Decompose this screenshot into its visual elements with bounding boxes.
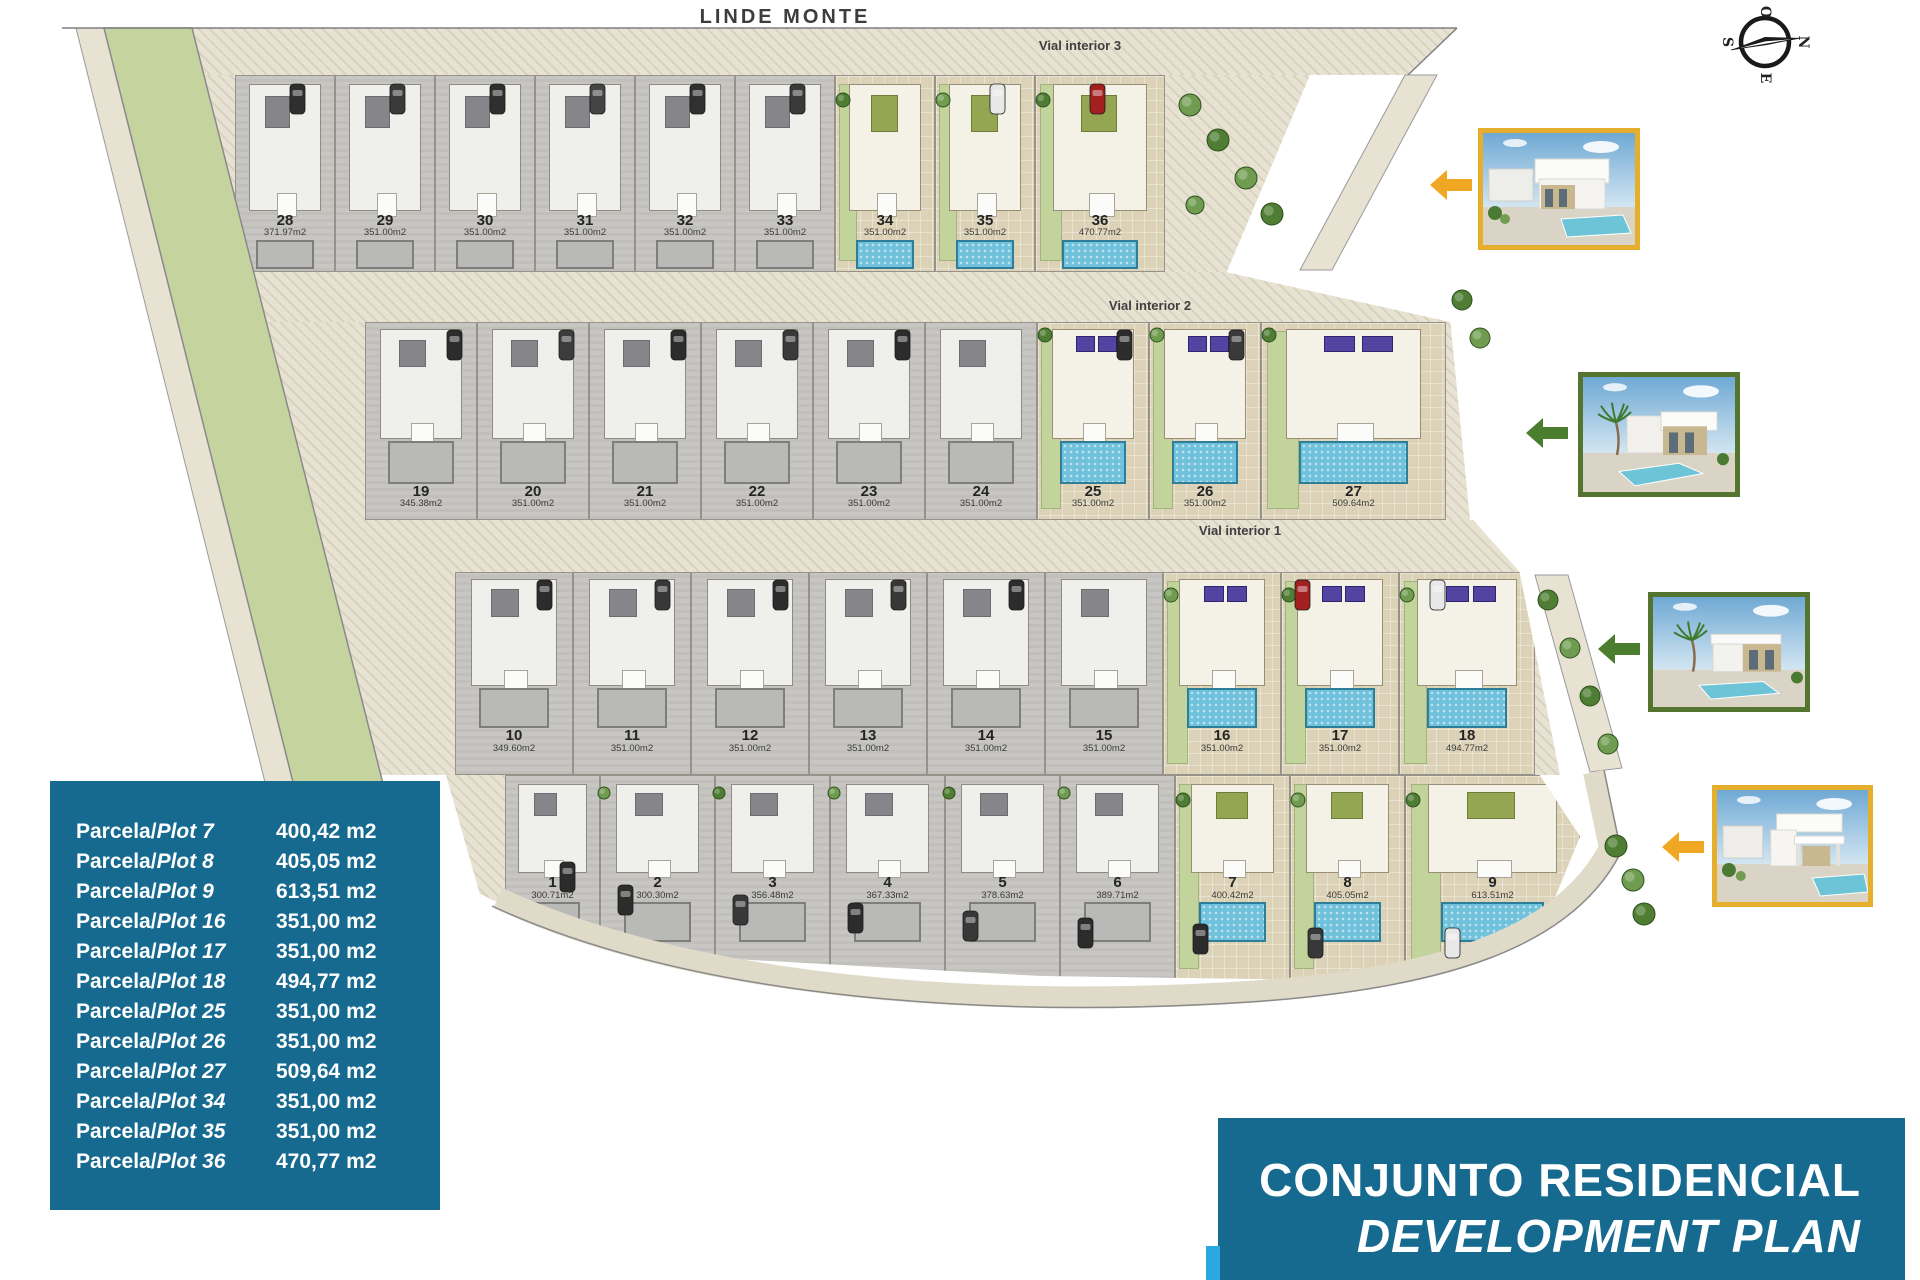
plot-area-label: 351.00m2 [810,744,926,754]
plot-23[interactable]: 23351.00m2 [813,322,925,520]
plot-label: 29351.00m2 [336,213,434,239]
legend-plot-label: Parcela/Plot 7 [76,817,276,847]
plot-number: 14 [928,728,1044,744]
legend-area-value: 351,00 m2 [276,910,376,933]
roof-patch [623,340,650,368]
legend-row-plot-27: Parcela/Plot 27509,64 m2 [76,1057,440,1087]
plot-30[interactable]: 30351.00m2 [435,75,535,272]
plot-area-label: 300.30m2 [601,891,714,901]
pool [724,441,790,484]
plot-number: 15 [1046,728,1162,744]
plot-number: 17 [1282,728,1398,744]
villa-photo-4[interactable] [1712,785,1873,907]
pool [388,441,454,484]
house [1191,784,1275,873]
house [849,84,922,211]
plot-13[interactable]: 13351.00m2 [809,572,927,775]
legend-area-value: 470,77 m2 [276,1150,376,1173]
legend-row-plot-25: Parcela/Plot 25351,00 m2 [76,997,440,1027]
plot-number: 34 [836,213,934,229]
plot-26[interactable]: 26351.00m2 [1149,322,1261,520]
house [1052,329,1133,439]
house [943,579,1029,686]
compass-rose-icon: ONES [1715,0,1815,92]
pool [854,902,922,943]
pool [1305,688,1375,728]
plot-area-label: 509.64m2 [1262,499,1445,509]
plot-area-label: 351.00m2 [702,499,812,509]
title-line-spanish: CONJUNTO RESIDENCIAL [1218,1152,1861,1208]
plot-area-label: 405.05m2 [1291,891,1404,901]
villa-photo-2[interactable] [1578,372,1740,497]
roof-patch [365,96,390,128]
legend-plot-label: Parcela/Plot 27 [76,1057,276,1087]
plot-label: 15351.00m2 [1046,728,1162,754]
svg-text:E: E [1757,73,1773,84]
plot-17[interactable]: 17351.00m2 [1281,572,1399,775]
plot-number: 4 [831,875,944,891]
plot-number: 2 [601,875,714,891]
plot-31[interactable]: 31351.00m2 [535,75,635,272]
plot-number: 9 [1406,875,1579,891]
legend-area-value: 351,00 m2 [276,1090,376,1113]
plot-area-label: 351.00m2 [590,499,700,509]
house [649,84,722,211]
plot-2[interactable]: 2300.30m2 [600,775,715,980]
plot-number: 1 [506,875,599,891]
roof-patch [534,793,557,816]
photo-arrow-green-icon [1526,418,1568,448]
roof-terrace [1216,792,1247,818]
pool [1060,441,1126,484]
plot-label: 27509.64m2 [1262,484,1445,510]
plot-number: 20 [478,484,588,500]
house [471,579,557,686]
plot-label: 10349.60m2 [456,728,572,754]
plot-area-label: 351.00m2 [636,228,734,238]
plot-18[interactable]: 18494.77m2 [1399,572,1535,775]
plot-area-label: 351.00m2 [574,744,690,754]
legend-plot-label: Parcela/Plot 34 [76,1087,276,1117]
house [1286,329,1421,439]
plot-area-label: 351.00m2 [926,499,1036,509]
house [825,579,911,686]
plot-28[interactable]: 28371.97m2 [235,75,335,272]
plot-35[interactable]: 35351.00m2 [935,75,1035,272]
pool [356,240,415,269]
plot-area-label: 351.00m2 [1164,744,1280,754]
plot-number: 7 [1176,875,1289,891]
house [492,329,573,439]
plot-label: 12351.00m2 [692,728,808,754]
plot-label: 23351.00m2 [814,484,924,510]
plot-label: 11351.00m2 [574,728,690,754]
house [1179,579,1265,686]
legend-plot-label: Parcela/Plot 35 [76,1117,276,1147]
plot-number: 27 [1262,484,1445,500]
plot-number: 30 [436,213,534,229]
pool [1069,688,1139,728]
plot-number: 5 [946,875,1059,891]
legend-area-value: 405,05 m2 [276,850,376,873]
plot-area-label: 378.63m2 [946,891,1059,901]
solar-panel [1188,336,1207,352]
legend-row-plot-7: Parcela/Plot 7400,42 m2 [76,817,440,847]
plot-12[interactable]: 12351.00m2 [691,572,809,775]
plot-number: 6 [1061,875,1174,891]
plot-area-label: 351.00m2 [336,228,434,238]
house [940,329,1021,439]
plot-area-label: 351.00m2 [536,228,634,238]
plot-label: 7400.42m2 [1176,875,1289,901]
house [616,784,700,873]
plot-19[interactable]: 19345.38m2 [365,322,477,520]
house [716,329,797,439]
roof-patch [635,793,663,816]
plot-label: 4367.33m2 [831,875,944,901]
cyan-accent-bar [1206,1246,1220,1280]
legend-area-value: 494,77 m2 [276,970,376,993]
house [604,329,685,439]
plot-8[interactable]: 8405.05m2 [1290,775,1405,980]
legend-area-value: 351,00 m2 [276,1030,376,1053]
plot-number: 10 [456,728,572,744]
photo-arrow-yellow-icon [1430,170,1472,200]
plot-label: 36470.77m2 [1036,213,1164,239]
plot-label: 13351.00m2 [810,728,926,754]
plot-number: 28 [236,213,334,229]
svg-text:S: S [1719,37,1735,47]
plot-area-label: 351.00m2 [814,499,924,509]
roof-patch [565,96,590,128]
plot-number: 24 [926,484,1036,500]
legend-row-plot-16: Parcela/Plot 16351,00 m2 [76,907,440,937]
plot-area-label: 351.00m2 [936,228,1034,238]
svg-text:N: N [1795,36,1811,49]
plot-25[interactable]: 25351.00m2 [1037,322,1149,520]
title-line-english: DEVELOPMENT PLAN [1218,1208,1861,1264]
plot-label: 2300.30m2 [601,875,714,901]
plot-10[interactable]: 10349.60m2 [455,572,573,775]
pool [833,688,903,728]
plot-34[interactable]: 34351.00m2 [835,75,935,272]
plot-27[interactable]: 27509.64m2 [1261,322,1446,520]
pool [951,688,1021,728]
plot-label: 25351.00m2 [1038,484,1148,510]
plot-label: 30351.00m2 [436,213,534,239]
pool [256,240,315,269]
roof-patch [465,96,490,128]
plot-area-label: 351.00m2 [1046,744,1162,754]
legend-row-plot-36: Parcela/Plot 36470,77 m2 [76,1147,440,1177]
plot-legend: Parcela/Plot 7400,42 m2Parcela/Plot 8405… [50,781,440,1210]
roof-terrace [1467,792,1514,818]
solar-panel [1098,336,1117,352]
pool [656,240,715,269]
house [1428,784,1556,873]
legend-row-plot-18: Parcela/Plot 18494,77 m2 [76,967,440,997]
plot-5[interactable]: 5378.63m2 [945,775,1060,980]
plot-number: 26 [1150,484,1260,500]
plot-number: 32 [636,213,734,229]
plot-area-label: 351.00m2 [1038,499,1148,509]
plot-label: 24351.00m2 [926,484,1036,510]
legend-row-plot-17: Parcela/Plot 17351,00 m2 [76,937,440,967]
legend-plot-label: Parcela/Plot 18 [76,967,276,997]
plot-3[interactable]: 3356.48m2 [715,775,830,980]
house [549,84,622,211]
plot-area-label: 389.71m2 [1061,891,1174,901]
house [1417,579,1516,686]
plot-label: 17351.00m2 [1282,728,1398,754]
site-boundary-label: LINDE MONTE [585,6,985,29]
pool [1427,688,1507,728]
plot-number: 11 [574,728,690,744]
roof-patch [399,340,426,368]
plot-row-row-10-18: 10349.60m211351.00m212351.00m213351.00m2… [210,572,1560,775]
pool [715,688,785,728]
plot-4[interactable]: 4367.33m2 [830,775,945,980]
plot-area-label: 351.00m2 [836,228,934,238]
pool [1172,441,1238,484]
plot-area-label: 400.42m2 [1176,891,1289,901]
plot-label: 22351.00m2 [702,484,812,510]
roof-patch [665,96,690,128]
plot-label: 9613.51m2 [1406,875,1579,901]
solar-panel [1204,586,1224,602]
solar-panel [1322,586,1342,602]
plot-label: 16351.00m2 [1164,728,1280,754]
plot-label: 8405.05m2 [1291,875,1404,901]
roof-patch [727,589,756,616]
solar-panel [1076,336,1095,352]
plot-20[interactable]: 20351.00m2 [477,322,589,520]
plot-area-label: 351.00m2 [736,228,834,238]
plot-label: 20351.00m2 [478,484,588,510]
road-vial-interior-1 [200,520,1540,572]
plot-15[interactable]: 15351.00m2 [1045,572,1163,775]
plot-area-label: 351.00m2 [928,744,1044,754]
roof-patch [845,589,874,616]
pool [556,240,615,269]
plot-label: 33351.00m2 [736,213,834,239]
pool [525,902,581,943]
plot-number: 31 [536,213,634,229]
plot-row-row-28-36: 28371.97m229351.00m230351.00m231351.00m2… [120,75,1310,272]
development-plan-canvas: LINDE MONTE Vial interior 3Vial interior… [0,0,1920,1280]
plot-area-label: 351.00m2 [1282,744,1398,754]
plot-row-row-19-27: 19345.38m220351.00m221351.00m222351.00m2… [160,322,1470,520]
plot-area-label: 345.38m2 [366,499,476,509]
solar-panel [1324,336,1355,352]
roof-patch [847,340,874,368]
legend-plot-label: Parcela/Plot 25 [76,997,276,1027]
plot-number: 12 [692,728,808,744]
solar-panel [1473,586,1496,602]
roof-terrace [1331,792,1362,818]
plot-number: 19 [366,484,476,500]
roof-patch [511,340,538,368]
pool [1441,902,1545,943]
plot-label: 28371.97m2 [236,213,334,239]
house [449,84,522,211]
solar-panel [1227,586,1247,602]
plot-9[interactable]: 9613.51m2 [1405,775,1580,980]
house [380,329,461,439]
solar-panel [1446,586,1469,602]
legend-plot-label: Parcela/Plot 36 [76,1147,276,1177]
legend-row-plot-35: Parcela/Plot 35351,00 m2 [76,1117,440,1147]
street-label-1: Vial interior 1 [1150,523,1330,538]
street-label-3: Vial interior 3 [990,38,1170,53]
plot-area-label: 470.77m2 [1036,228,1164,238]
plot-label: 26351.00m2 [1150,484,1260,510]
plot-21[interactable]: 21351.00m2 [589,322,701,520]
house [1164,329,1245,439]
plot-number: 33 [736,213,834,229]
plot-label: 1300.71m2 [506,875,599,901]
plot-area-label: 613.51m2 [1406,891,1579,901]
house [249,84,322,211]
plot-number: 22 [702,484,812,500]
plot-22[interactable]: 22351.00m2 [701,322,813,520]
roof-terrace [1081,95,1116,132]
plot-32[interactable]: 32351.00m2 [635,75,735,272]
roof-patch [963,589,992,616]
plot-24[interactable]: 24351.00m2 [925,322,1037,520]
house [589,579,675,686]
plot-6[interactable]: 6389.71m2 [1060,775,1175,980]
roof-patch [865,793,893,816]
plot-7[interactable]: 7400.42m2 [1175,775,1290,980]
legend-row-plot-8: Parcela/Plot 8405,05 m2 [76,847,440,877]
plot-29[interactable]: 29351.00m2 [335,75,435,272]
plot-36[interactable]: 36470.77m2 [1035,75,1165,272]
legend-row-plot-9: Parcela/Plot 9613,51 m2 [76,877,440,907]
plot-label: 19345.38m2 [366,484,476,510]
plot-label: 5378.63m2 [946,875,1059,901]
pool [948,441,1014,484]
legend-area-value: 509,64 m2 [276,1060,376,1083]
pool [1314,902,1382,943]
house [518,784,587,873]
roof-patch [609,589,638,616]
plot-area-label: 367.33m2 [831,891,944,901]
house [1297,579,1383,686]
plot-label: 35351.00m2 [936,213,1034,239]
legend-area-value: 613,51 m2 [276,880,376,903]
svg-text:O: O [1757,6,1773,18]
roof-patch [980,793,1008,816]
plot-area-label: 349.60m2 [456,744,572,754]
solar-panel [1362,336,1393,352]
pool [1299,441,1409,484]
plot-area-label: 351.00m2 [478,499,588,509]
street-label-2: Vial interior 2 [1060,298,1240,313]
plot-33[interactable]: 33351.00m2 [735,75,835,272]
house [749,84,822,211]
roof-patch [750,793,778,816]
roof-patch [265,96,290,128]
house [949,84,1022,211]
legend-plot-label: Parcela/Plot 8 [76,847,276,877]
pool [597,688,667,728]
pool [969,902,1037,943]
house [1053,84,1148,211]
roof-terrace [871,95,898,132]
roof-terrace [971,95,998,132]
plot-label: 14351.00m2 [928,728,1044,754]
plot-area-label: 351.00m2 [1150,499,1260,509]
plot-area-label: 351.00m2 [692,744,808,754]
plot-number: 3 [716,875,829,891]
house [1306,784,1390,873]
road-vial-interior-3 [62,28,1457,75]
pool [624,902,692,943]
roof-patch [735,340,762,368]
plot-area-label: 300.71m2 [506,891,599,901]
house [828,329,909,439]
legend-area-value: 351,00 m2 [276,940,376,963]
legend-plot-label: Parcela/Plot 16 [76,907,276,937]
pool [739,902,807,943]
house [1076,784,1160,873]
pool [612,441,678,484]
plot-label: 32351.00m2 [636,213,734,239]
pool [856,240,915,269]
house [961,784,1045,873]
solar-panel [1210,336,1229,352]
plot-number: 35 [936,213,1034,229]
pool [479,688,549,728]
title-block: CONJUNTO RESIDENCIAL DEVELOPMENT PLAN [1218,1118,1905,1280]
legend-area-value: 400,42 m2 [276,820,376,843]
plot-number: 23 [814,484,924,500]
pool [836,441,902,484]
plot-area-label: 356.48m2 [716,891,829,901]
roof-patch [1081,589,1110,616]
pool [1187,688,1257,728]
plot-1[interactable]: 1300.71m2 [505,775,600,980]
legend-plot-label: Parcela/Plot 26 [76,1027,276,1057]
plot-area-label: 351.00m2 [436,228,534,238]
pool [1084,902,1152,943]
plot-label: 31351.00m2 [536,213,634,239]
plot-16[interactable]: 16351.00m2 [1163,572,1281,775]
plot-area-label: 371.97m2 [236,228,334,238]
roof-patch [1095,793,1123,816]
villa-photo-1[interactable] [1478,128,1640,250]
plot-label: 34351.00m2 [836,213,934,239]
plot-14[interactable]: 14351.00m2 [927,572,1045,775]
pool [500,441,566,484]
house [707,579,793,686]
legend-plot-label: Parcela/Plot 9 [76,877,276,907]
plot-label: 3356.48m2 [716,875,829,901]
plot-number: 8 [1291,875,1404,891]
plot-11[interactable]: 11351.00m2 [573,572,691,775]
plot-number: 16 [1164,728,1280,744]
legend-area-value: 351,00 m2 [276,1120,376,1143]
roof-patch [959,340,986,368]
roof-patch [765,96,790,128]
pool [756,240,815,269]
villa-photo-3[interactable] [1648,592,1810,712]
legend-rows: Parcela/Plot 7400,42 m2Parcela/Plot 8405… [76,817,440,1177]
house [1061,579,1147,686]
solar-panel [1345,586,1365,602]
plot-number: 21 [590,484,700,500]
